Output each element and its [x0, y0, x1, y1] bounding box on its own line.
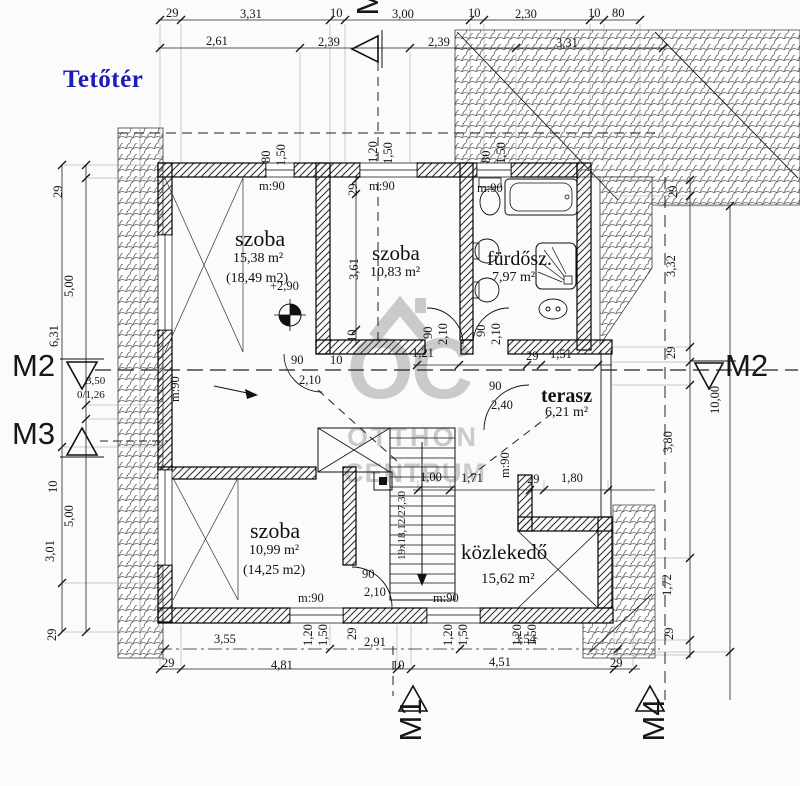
dim-label: 29 [610, 657, 623, 670]
dim-label: 1,00 [420, 471, 442, 484]
dim-label: 2,10 [490, 323, 503, 345]
dim-label: 1,50 [317, 624, 330, 646]
room-label-szoba1: szoba [235, 228, 285, 250]
dim-label: 10 [346, 330, 359, 343]
dim-label: 10,00 [709, 386, 722, 414]
dim-label: 29 [665, 347, 678, 360]
room-area-furdo: 7,97 m² [492, 271, 535, 285]
dim-label: 1,50 [382, 142, 395, 164]
section-marker-m4-bottom: M4 [633, 685, 673, 755]
dim-label: 29 [526, 350, 539, 363]
dim-label: 29 [347, 184, 360, 197]
dim-label: 1,21 [412, 347, 434, 360]
room-label-szoba2: szoba [372, 243, 420, 264]
dim-label: 3,61 [348, 258, 361, 280]
dim-label: 90 [291, 354, 304, 367]
dim-label: 80 [480, 151, 493, 164]
dim-label: 3,31 [240, 8, 262, 21]
dim-label: 1,20 [367, 141, 380, 163]
dim-label: 29 [667, 186, 680, 199]
dim-label: 90 [489, 380, 502, 393]
dim-label: 2,10 [299, 374, 321, 387]
dim-label: 3,00 [392, 8, 414, 21]
section-marker-m3-left: M3 [12, 418, 55, 449]
dim-label: 29 [663, 628, 676, 641]
dim-label: 10 [330, 354, 343, 367]
floorplan-page: OC OTTHON CENTRUM [0, 0, 800, 786]
room-label-terasz: terasz [541, 386, 592, 406]
room-area-szoba3: 10,99 m² [249, 544, 299, 558]
bidet-icon [539, 299, 567, 319]
dim-label: 10 [392, 659, 405, 672]
dim-label: 1,20 [442, 624, 455, 646]
dim-label: 3,55 [214, 633, 236, 646]
dim-label: m:90 [369, 180, 395, 193]
dim-label: 1,72 [661, 574, 674, 596]
dim-label: m:90 [477, 182, 503, 195]
dim-label: 10 [468, 7, 481, 20]
dim-label: 5,00 [63, 275, 76, 297]
dim-label: 1,50 [495, 142, 508, 164]
dim-label: 2,39 [318, 36, 340, 49]
room-area-szoba2: 10,83 m² [370, 266, 420, 280]
room-label-furdo: fürdősz. [487, 249, 552, 269]
level-mark-symbol [274, 299, 306, 331]
dim-label: 29 [52, 186, 65, 199]
dim-label: 4,81 [271, 659, 293, 672]
dim-label: 19x18,12/27,30 [397, 491, 408, 560]
dim-label: 1,80 [561, 472, 583, 485]
dim-label: 1,50 [275, 144, 288, 166]
section-marker-m2-right: M2 [725, 350, 768, 381]
dim-label: 2,91 [364, 636, 386, 649]
dim-label: 3,50 [86, 376, 105, 387]
dim-label: +2,90 [270, 280, 299, 293]
dim-label: 10 [47, 481, 60, 494]
dim-label: m:90 [298, 592, 324, 605]
roof-shingle-areas [118, 30, 800, 658]
dim-label: 90 [475, 325, 488, 338]
page-title: Tetőtér [63, 66, 143, 94]
dim-label: 1,20 [511, 624, 524, 646]
dim-label: 1,51 [550, 348, 572, 361]
dim-label: m:90 [259, 180, 285, 193]
dim-label: 2,10 [364, 586, 386, 599]
dim-label: 90 [362, 568, 375, 581]
dim-label: m:90 [433, 592, 459, 605]
dim-label: 6,31 [48, 325, 61, 347]
dim-label: 4,51 [489, 656, 511, 669]
dim-label: 1,20 [302, 624, 315, 646]
dim-label: 10 [588, 7, 601, 20]
dim-label: 3,01 [44, 540, 57, 562]
dim-label: 29 [166, 7, 179, 20]
dim-label: 29 [346, 628, 359, 641]
dim-label: 3,32 [665, 255, 678, 277]
watermark-house-icon [374, 298, 426, 338]
section-marker-m1-bottom: M1 [390, 685, 430, 755]
dim-label: 3,31 [556, 37, 578, 50]
dim-label: 1,71 [461, 472, 483, 485]
section-marker-m1-top: M1 [347, 0, 387, 29]
dim-label: 2,30 [515, 8, 537, 21]
room-label-szoba3: szoba [250, 520, 300, 542]
dim-label: 80 [612, 7, 625, 20]
dim-label: 0/1,26 [77, 390, 105, 401]
dim-label: 5,00 [63, 505, 76, 527]
bathtub-icon [505, 179, 577, 215]
dim-label: 1,50 [457, 624, 470, 646]
room-area-terasz: 6,21 m² [545, 406, 588, 420]
dim-label: 80 [260, 151, 273, 164]
dim-label: 2,39 [428, 36, 450, 49]
slope-arrow [214, 386, 258, 399]
dim-label: 3,80 [662, 431, 675, 453]
dim-label: 2,40 [491, 399, 513, 412]
dim-label: 10 [330, 7, 343, 20]
dim-label: 2,10 [437, 323, 450, 345]
dim-label: m:90 [499, 452, 512, 478]
dim-label: 1,50 [526, 624, 539, 646]
room-area-kozlekedo: 15,62 m² [481, 572, 535, 587]
windows [158, 163, 511, 623]
dim-label: 90 [422, 327, 435, 340]
dim-label: 29 [162, 657, 175, 670]
dim-label: 29 [527, 473, 540, 486]
room-label-kozlekedo: közlekedő [461, 542, 547, 563]
section-marker-m2-left: M2 [12, 350, 55, 381]
room-area-alt-szoba3: (14,25 m2) [243, 564, 305, 578]
dim-label: 29 [46, 629, 59, 642]
dim-label: m:90 [169, 376, 182, 402]
room-area-szoba1: 15,38 m² [233, 252, 283, 266]
dim-label: 2,61 [206, 35, 228, 48]
